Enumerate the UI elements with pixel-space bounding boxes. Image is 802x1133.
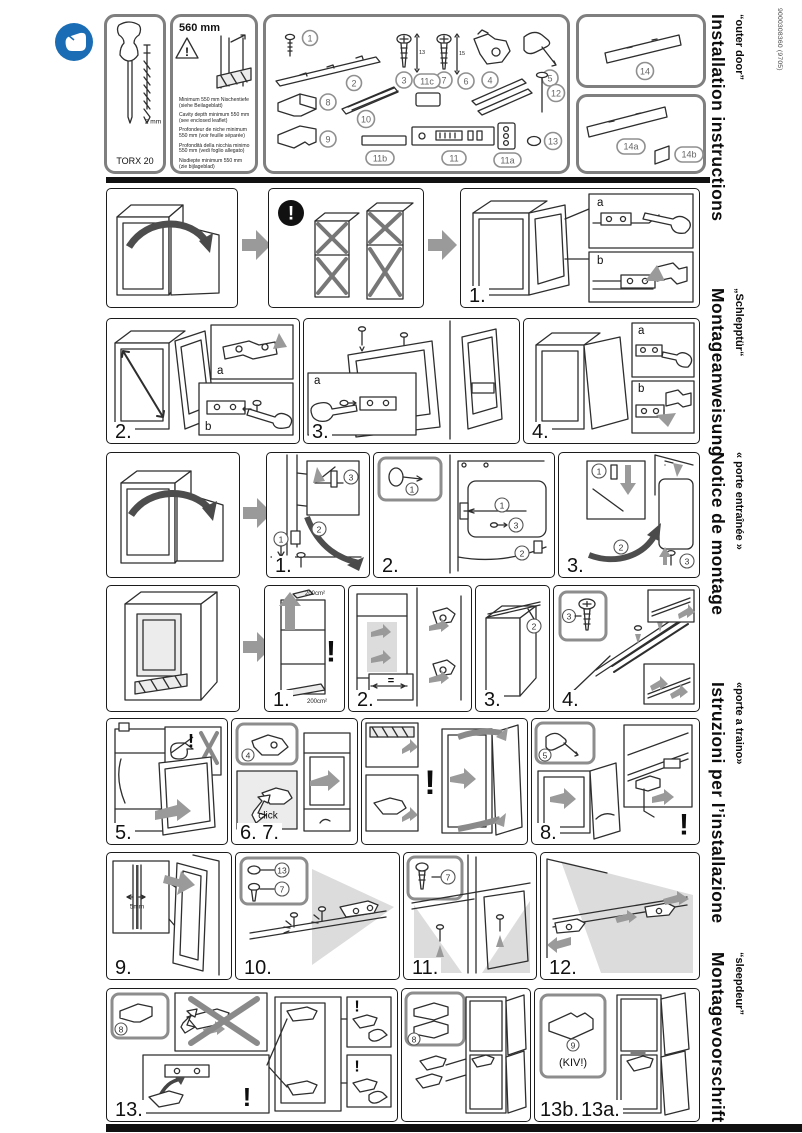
part-14-illustration: 14	[579, 17, 703, 85]
svg-text:11c: 11c	[420, 77, 434, 87]
step-label-5: 5.	[112, 823, 135, 843]
svg-text:1: 1	[597, 467, 602, 477]
svg-text:click: click	[258, 811, 278, 822]
svg-text:6: 6	[463, 77, 468, 87]
title-en: Installation instructions	[707, 14, 728, 221]
step-label-r4-1: 1.	[272, 556, 295, 576]
note-fr: Profondeur de niche minimum 550 mm (voir…	[179, 128, 250, 140]
wrong-config-illustration: !	[269, 189, 421, 305]
panel-row5-step-4: 3 4.	[553, 585, 700, 712]
step13b-illustration: 8	[402, 989, 528, 1119]
svg-text:11b: 11b	[373, 154, 387, 164]
note-nl: Nisdiepte minimum 550 mm (zie bijlagebla…	[179, 159, 250, 171]
title-fr: Notice de montage	[707, 452, 728, 615]
subtitle-it: «porte a traino»	[733, 682, 745, 923]
step1-illustration: a b	[461, 189, 697, 305]
panel-door-engage: !	[361, 718, 528, 845]
svg-text:!: !	[679, 809, 689, 842]
svg-text:!: !	[243, 1082, 252, 1112]
svg-text:3: 3	[349, 473, 354, 483]
svg-text:1: 1	[410, 485, 415, 495]
parts-panel: 1 2 13 3 15 7 4 5 8	[263, 14, 570, 174]
svg-text:12: 12	[551, 89, 561, 99]
tool-panel: 2 mm TORX 20	[104, 14, 166, 174]
panel-row5-step-2: = 2.	[348, 585, 472, 712]
panel-door-swing-intro	[106, 452, 240, 578]
step-label-r5-1: 1.	[270, 690, 293, 710]
svg-text:8: 8	[412, 1035, 417, 1045]
step2-illustration: a b	[107, 319, 297, 441]
panel-step-11: 7 11.	[403, 852, 537, 980]
step-label-3: 3.	[309, 422, 332, 442]
svg-text:200cm²: 200cm²	[305, 591, 325, 597]
svg-text:3: 3	[401, 76, 406, 86]
panel-warning-configs: !	[268, 188, 424, 308]
note-it: Profondità della nicchia minimo 550 mm (…	[179, 144, 250, 156]
title-de: Montageanweisung	[707, 288, 728, 457]
svg-text:!: !	[354, 1059, 359, 1076]
svg-text:!: !	[288, 204, 294, 225]
step-label-r5-4: 4.	[559, 690, 582, 710]
svg-text:11: 11	[449, 154, 458, 164]
step-label-13: 13.	[112, 1100, 146, 1120]
svg-text:14a: 14a	[623, 142, 638, 152]
svg-text:9: 9	[571, 1041, 576, 1051]
panel-step-8: 5 ! 8.	[531, 718, 700, 845]
hand-icon	[54, 22, 94, 62]
svg-text:b: b	[638, 383, 644, 395]
title-french: Notice de montage « porte entraînée »	[707, 452, 745, 615]
svg-text:5: 5	[547, 74, 552, 84]
subtitle-en: “outer door”	[733, 14, 745, 221]
title-italian: Istruzioni per l’installazione «porte a …	[707, 682, 745, 923]
panel-row5-step-1: 200cm² 200cm² ! 1.	[264, 585, 345, 712]
parts-illustration: 1 2 13 3 15 7 4 5 8	[266, 17, 565, 169]
svg-text:=: =	[388, 675, 394, 687]
step3-illustration: a	[304, 319, 517, 441]
niche-sketch: !	[173, 34, 255, 96]
svg-text:13: 13	[277, 866, 287, 876]
panel-step-1-remove-hinge: a b 1.	[460, 188, 700, 308]
bottom-rule	[106, 1124, 802, 1132]
part-14ab-illustration: 14a 14b	[579, 97, 703, 171]
screwdriver-icon	[107, 17, 163, 149]
svg-text:5: 5	[543, 751, 548, 761]
svg-text:2: 2	[351, 79, 356, 89]
step-label-12: 12.	[546, 958, 580, 978]
panel-row5-step-3: 2 3.	[475, 585, 550, 712]
svg-text:9: 9	[325, 135, 330, 145]
panel-step-5: ! 5.	[106, 718, 228, 845]
panel-door-swap-intro	[106, 188, 238, 308]
panel-step-6-7: 4 click 6. 7.	[231, 718, 358, 845]
title-it: Istruzioni per l’installazione	[707, 682, 728, 923]
step-label-13b: 13b.	[540, 1100, 579, 1120]
svg-text:15: 15	[459, 51, 465, 57]
svg-text:14b: 14b	[681, 150, 696, 160]
svg-text:b: b	[205, 421, 211, 433]
svg-text:2: 2	[520, 549, 525, 559]
step-label-r5-3: 3.	[481, 690, 504, 710]
svg-text:1: 1	[279, 535, 284, 545]
bit-size-label: 2 mm	[109, 115, 167, 129]
svg-text:!: !	[354, 999, 359, 1016]
niche-notes: Minimum 550 mm Nischentiefe (siehe Beila…	[173, 96, 255, 170]
title-dutch: Montagevoorschrift “sleepdeur”	[707, 952, 745, 1123]
svg-text:3: 3	[514, 521, 519, 531]
door-engage-illustration: !	[362, 719, 525, 842]
svg-text:1: 1	[500, 501, 505, 511]
svg-text:a: a	[638, 325, 645, 337]
step13-illustration: 8 ! ! !	[107, 989, 395, 1119]
note-en: Cavity depth minimum 550 mm (see enclose…	[179, 113, 250, 125]
svg-text:7: 7	[280, 885, 285, 895]
step-label-r4-3: 3.	[564, 556, 587, 576]
step-label-1: 1.	[466, 286, 489, 306]
door-swing-illustration	[107, 453, 237, 575]
svg-text:14: 14	[640, 67, 650, 77]
step-label-r4-2: 2.	[379, 556, 402, 576]
svg-text:!: !	[326, 636, 336, 669]
svg-text:!: !	[188, 731, 194, 751]
step-label-13b-13a: 13b.13a.	[537, 1100, 623, 1120]
svg-text:(KIV!): (KIV!)	[559, 1057, 587, 1069]
svg-text:2 mm: 2 mm	[145, 119, 161, 126]
svg-text:4: 4	[487, 76, 492, 86]
svg-text:!: !	[424, 764, 435, 802]
panel-step-13: 8 ! ! ! 13.	[106, 988, 398, 1122]
panel-row4-step-1: 3 1 2 1.	[266, 452, 370, 578]
part-14-panel: 14	[576, 14, 706, 88]
niche-depth-value: 560 mm	[179, 22, 255, 34]
step-label-9: 9.	[112, 958, 135, 978]
panel-step-13b-view: 8	[401, 988, 531, 1122]
title-german: Montageanweisung „Schlepptür“	[707, 288, 745, 457]
panel-step-2: a b 2.	[106, 318, 300, 444]
svg-text:b: b	[597, 255, 603, 267]
svg-text:4: 4	[246, 751, 251, 761]
note-de: Minimum 550 mm Nischentiefe (siehe Beila…	[179, 98, 250, 110]
svg-text:2: 2	[317, 525, 322, 535]
svg-text:8: 8	[119, 1025, 124, 1035]
svg-text:1: 1	[307, 34, 312, 44]
niche-intro-illustration	[107, 586, 237, 709]
svg-text:3: 3	[567, 612, 572, 622]
svg-text:!: !	[185, 45, 189, 59]
svg-text:a: a	[217, 365, 224, 377]
step-label-2: 2.	[112, 422, 135, 442]
step-label-6-7: 6. 7.	[237, 823, 282, 843]
door-swap-illustration	[107, 189, 235, 305]
torx-label: TORX 20	[107, 156, 163, 166]
svg-text:3: 3	[685, 557, 690, 567]
subtitle-de: „Schlepptür“	[733, 288, 745, 457]
step-label-4: 4.	[529, 422, 552, 442]
panel-step-13a: 9 (KIV!) 13b.13a.	[534, 988, 700, 1122]
panel-row4-step-2: 1 1 2 3 2.	[373, 452, 555, 578]
panel-step-10: 13 7 10.	[235, 852, 400, 980]
subtitle-nl: “sleepdeur”	[733, 952, 745, 1123]
svg-text:13: 13	[419, 50, 425, 56]
svg-text:5mm: 5mm	[130, 904, 144, 911]
flow-arrow-icon	[428, 228, 458, 262]
part-14ab-panel: 14a 14b	[576, 94, 706, 174]
step-label-8: 8.	[537, 823, 560, 843]
top-divider	[106, 177, 710, 183]
step-label-13a: 13a.	[581, 1100, 620, 1120]
svg-text:7: 7	[441, 76, 446, 86]
svg-text:7: 7	[446, 873, 451, 883]
svg-text:a: a	[314, 375, 321, 387]
svg-text:13: 13	[548, 137, 558, 147]
panel-niche-intro	[106, 585, 240, 712]
subtitle-fr: « porte entraînée »	[733, 452, 745, 615]
svg-text:200cm²: 200cm²	[307, 699, 327, 705]
step-label-11: 11.	[409, 958, 441, 978]
panel-step-12: 12.	[540, 852, 700, 980]
step-label-r5-2: 2.	[354, 690, 377, 710]
instruction-sheet: 9000308360 (9705) Installation instructi…	[0, 0, 802, 1133]
title-nl: Montagevoorschrift	[707, 952, 728, 1123]
svg-text:8: 8	[325, 98, 330, 108]
svg-text:2: 2	[619, 543, 624, 553]
svg-text:a: a	[597, 197, 604, 209]
niche-depth-panel: 560 mm ! Minimum 550 mm Nischentiefe (si…	[170, 14, 258, 174]
svg-text:2: 2	[532, 622, 537, 632]
panel-step-4: a b 4.	[523, 318, 700, 444]
panel-row4-step-3: 1 2 3 3.	[558, 452, 700, 578]
svg-text:11a: 11a	[500, 156, 514, 166]
step-label-10: 10.	[241, 958, 275, 978]
panel-step-3: a 3.	[303, 318, 520, 444]
document-code: 9000308360 (9705)	[776, 8, 783, 71]
svg-text:10: 10	[361, 115, 371, 125]
panel-step-9: 5mm 9.	[106, 852, 232, 980]
title-english: Installation instructions “outer door”	[707, 14, 745, 221]
